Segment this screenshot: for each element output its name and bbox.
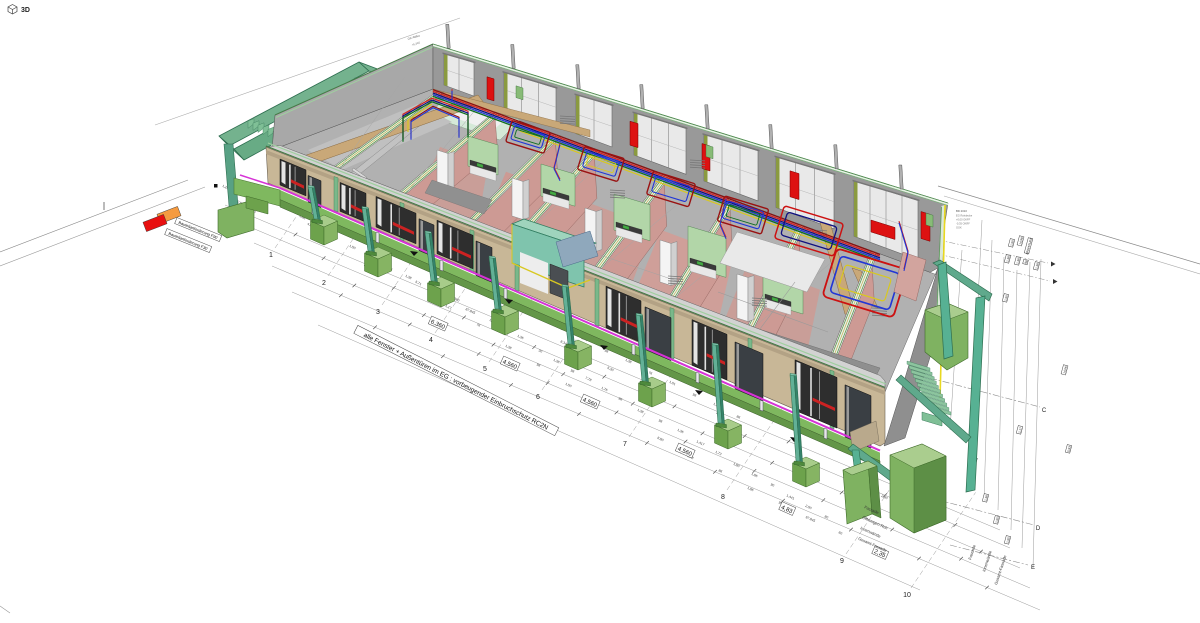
svg-text:-0,35 OKRF: -0,35 OKRF: [956, 222, 970, 226]
svg-text:6: 6: [536, 394, 540, 401]
svg-text:BD 2010: BD 2010: [956, 209, 967, 213]
svg-text:7: 7: [623, 441, 627, 448]
svg-text:9: 9: [840, 558, 844, 565]
svg-text:5: 5: [483, 366, 487, 373]
svg-text:E: E: [1031, 565, 1035, 571]
svg-text:1: 1: [269, 252, 273, 259]
svg-text:3D: 3D: [21, 7, 30, 14]
svg-text:2: 2: [322, 280, 326, 287]
svg-text:C: C: [1042, 408, 1047, 414]
svg-text:EG Rohdecke: EG Rohdecke: [956, 214, 973, 218]
svg-text:D: D: [1036, 526, 1041, 532]
svg-text:4: 4: [429, 337, 433, 344]
svg-text:10: 10: [903, 592, 911, 599]
svg-text:GOK: GOK: [956, 226, 962, 230]
svg-text:3: 3: [376, 309, 380, 316]
svg-text:+0,00 OKFF: +0,00 OKFF: [956, 218, 971, 222]
svg-text:8: 8: [721, 494, 725, 501]
